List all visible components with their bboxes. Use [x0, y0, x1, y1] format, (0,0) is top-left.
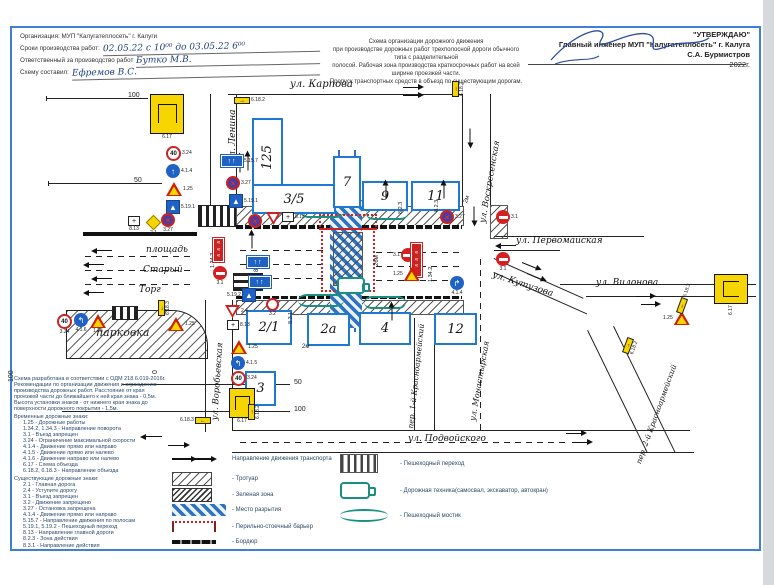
lanes-sign-icon: ↑↑ — [247, 256, 269, 268]
road-sign-1.25: 1.25 — [231, 340, 258, 354]
road-sign-chevv: « « « — [213, 238, 224, 262]
yield-sign-icon — [225, 305, 240, 318]
sidewalk-hatch-icon — [172, 472, 212, 486]
traffic-arrow — [89, 264, 104, 265]
sign-code: 3.1 — [217, 281, 224, 286]
street-label: ул. Кутузова — [491, 270, 555, 299]
legend-item-digsite: - Место разрытия — [172, 504, 281, 516]
sign-code: 8.13 — [295, 215, 305, 220]
building: 4 — [359, 312, 411, 345]
map-text: 100 — [294, 406, 306, 413]
green-zone-icon — [172, 488, 212, 502]
sign-code: 5.19.2 — [227, 293, 241, 298]
noentry-sign-icon — [496, 210, 510, 224]
sign-code: 3.27 — [455, 215, 465, 220]
map-text: 50 — [134, 177, 142, 184]
road-sign-6.17: 6.17 — [150, 94, 184, 140]
road-sign-3.2: 3.2 — [266, 298, 279, 317]
road-line — [232, 452, 694, 453]
road-sign-3.24: 403.24 — [231, 371, 257, 386]
bridge-zone — [298, 294, 344, 307]
traffic-arrow — [392, 308, 393, 321]
traffic-arrow — [444, 186, 445, 199]
legend-item-sidewalk: - Тротуар — [172, 472, 258, 486]
traffic-arrow — [501, 245, 516, 246]
sign-code: 4.1.4 — [451, 291, 462, 296]
temp-signs-list: 1.25 - Дорожные работы1.34.2, 1.34.3 - Н… — [14, 420, 238, 475]
sign-code: 4.1.4 — [181, 169, 192, 174]
building: 3/5 — [252, 184, 336, 214]
legend-label: - Дорожная техника(самосвал, экскаватор,… — [400, 488, 548, 494]
road-sign-6.17: 6.17 — [714, 274, 748, 315]
sign-code: 6.18.2 — [256, 405, 261, 419]
road-sign-3.24: 403.24 — [166, 146, 192, 161]
legend-item-machinery: - Дорожная техника(самосвал, экскаватор,… — [340, 482, 548, 499]
sign-code: 1.25 — [185, 322, 195, 327]
legend-label: - Перильно-стоечный барьер — [232, 524, 313, 530]
street-label: Старый — [143, 265, 183, 275]
traffic-arrow — [522, 262, 536, 269]
yplate-sign-icon: ← — [158, 300, 165, 316]
traffic-arrow — [386, 186, 387, 199]
yplate-sign-icon: → — [234, 97, 250, 104]
road-line — [462, 94, 463, 206]
plate-sign-icon: + — [128, 216, 140, 226]
road-sign-4.1.4: ↱4.1.4 — [450, 276, 464, 296]
road-sign-2.1: 2.1 — [146, 215, 161, 236]
traffic-arrow — [470, 129, 471, 143]
sign-code: 3.27 — [241, 181, 251, 186]
legend-label: - Пешеходный мостик — [400, 513, 461, 519]
speed-sign-icon: 40 — [166, 146, 181, 161]
work-sign-icon — [168, 317, 184, 331]
detour-sign-icon — [150, 94, 184, 134]
chevv-sign-icon: « « « — [213, 238, 224, 262]
ped-sign-icon: ▲ — [229, 194, 243, 208]
sign-code: 4.1.5 — [246, 361, 257, 366]
sign-code: 6.17 — [162, 135, 172, 140]
sign-code: 3.1 — [393, 253, 400, 258]
road-sign-4.1.5: ↰4.1.5 — [231, 356, 257, 370]
road-line — [240, 442, 570, 443]
road-sign-lanes: ↑↑ — [249, 276, 271, 288]
legend-label: - Пешеходный переход — [400, 461, 464, 467]
blue-sign-icon: ↰ — [74, 313, 88, 327]
sign-code: 3.1 — [500, 267, 507, 272]
sign-code: 1.25 — [93, 329, 103, 334]
sign-code: 3.24 — [247, 376, 257, 381]
sign-code: 6.18.2 — [251, 98, 265, 103]
sign-code: 3.1 — [511, 215, 518, 220]
yplate-sign-icon: → — [452, 81, 459, 97]
road-line — [46, 96, 47, 101]
road-line — [494, 250, 560, 251]
yplate-sign-icon: → — [248, 404, 255, 420]
street-label: ул. Первомайская — [516, 236, 603, 246]
road-sign-6.18.3: ←6.18.3 — [676, 283, 693, 314]
traffic-arrow — [572, 442, 587, 443]
sign-code: 5.19.1 — [181, 205, 195, 210]
crosswalk-icon — [340, 454, 378, 473]
yield-sign-icon — [266, 212, 281, 225]
legend-label: Направление движения транспорта — [232, 456, 332, 462]
map-text: 50 — [294, 379, 302, 386]
building-number: 2/1 — [259, 320, 280, 335]
work-sign-icon — [90, 314, 106, 328]
legend-item-footbridge: - Пешеходный мостик — [340, 509, 461, 522]
traffic-arrow — [89, 292, 104, 293]
building-number: 2а — [320, 322, 336, 337]
road-sign-3.1: 3.1 — [496, 210, 518, 224]
building-number: 125 — [260, 145, 275, 170]
sign-code: 1.25 — [663, 316, 673, 321]
road-sign-5.19.1: ▲5.19.1 — [229, 194, 258, 208]
nostop-sign-icon: × — [226, 176, 240, 190]
road-line — [587, 330, 648, 453]
road-sign-3.27: ×3.27 — [440, 210, 465, 224]
building: 2а — [307, 313, 350, 346]
road-sign-5.19.2: ▲5.19.2 — [227, 288, 256, 302]
sign-code: 6.18.3 — [180, 418, 194, 423]
yplate-sign-icon: ← — [195, 417, 211, 424]
legend-label: - Бордюр — [232, 539, 257, 545]
road-sign-lanes: ↑↑ — [247, 256, 269, 268]
bridge-zone — [364, 296, 406, 309]
sign-code: 3.27 — [163, 228, 173, 233]
traffic-arrow — [97, 278, 112, 279]
map-text: 26м — [374, 255, 380, 266]
noentry-sign-icon — [496, 252, 510, 266]
traffic-arrow — [252, 236, 253, 249]
legend-item-direction: Направление движения транспорта — [172, 455, 332, 462]
road-line — [48, 183, 162, 184]
lanes-sign-icon: ↑↑ — [249, 276, 271, 288]
scheme-sheet: Организация: МУП "Калугатеплосеть" г. Ка… — [0, 0, 774, 585]
road-sign-5.15.7: ↑↑5.15.7 — [221, 155, 258, 167]
sign-code: 3.24 — [60, 330, 70, 335]
street-label: площадь — [146, 245, 188, 255]
speed-sign-icon: 40 — [57, 314, 72, 329]
legend-label: - Тротуар — [232, 476, 258, 482]
legend-label: - Зеленая зона — [232, 492, 274, 498]
map-text: 2м — [302, 344, 309, 350]
road-sign-8.13: +8.13 — [227, 320, 250, 330]
ring-sign-icon — [266, 298, 279, 311]
sign-code: 2.1 — [150, 231, 157, 236]
zebra-v-zone — [112, 306, 138, 320]
sign-code: 5.19.1 — [244, 199, 258, 204]
work-sign-icon — [166, 182, 182, 196]
road-sign-1.25: 1.25 — [166, 182, 193, 196]
traffic-arrow — [566, 433, 581, 434]
plate-sign-icon: + — [282, 212, 294, 222]
road-sign-1.25: 1.25 — [168, 317, 195, 331]
sign-code: 3.24 — [182, 151, 192, 156]
legend-item-crosswalk: - Пешеходный переход — [340, 454, 464, 473]
sign-code: 2.4 — [241, 309, 248, 314]
lanes-sign-icon: ↑↑ — [221, 155, 243, 167]
road-line — [210, 94, 211, 214]
legend-item-greenzone: - Зеленая зона — [172, 488, 274, 502]
legend-item-barrier: - Перильно-стоечный барьер — [172, 521, 313, 532]
map-text: 1.34.2 — [428, 267, 434, 282]
map-text: 8.2.3 — [398, 202, 404, 214]
road-sign-1.25: 1.25 — [663, 311, 690, 325]
footbridge-icon — [340, 509, 388, 522]
sign-code: 6.18.2 — [460, 82, 465, 96]
legend-item-kerb: - Бордюр — [172, 539, 257, 545]
sign-code: 6.18.3 — [166, 301, 171, 315]
road-sign-3.1: 3.1 — [496, 252, 510, 272]
road-sign-8.13: +8.13 — [128, 216, 140, 232]
sign-code: 3.2 — [269, 312, 276, 317]
sign-code: 6.17 — [729, 305, 734, 315]
road-sign-yield — [266, 212, 281, 225]
sign-code: 5.15.7 — [244, 159, 258, 164]
blue-sign-icon: ↰ — [231, 356, 245, 370]
road-line — [48, 181, 49, 186]
building: 12 — [434, 313, 477, 345]
road-sign-3.1: 3.1 — [213, 266, 227, 286]
road-sign-3.27: ×3.27 — [226, 176, 251, 190]
traffic-arrow — [403, 95, 418, 96]
road-sign-5.19.1: ▲5.19.1 — [166, 200, 195, 214]
traffic-arrow — [527, 273, 541, 280]
map-text: 100 — [128, 92, 140, 99]
map-text: 2м — [463, 195, 471, 204]
road-sign-1.25: 1.25 — [393, 267, 420, 281]
building-number: 4 — [381, 321, 389, 336]
building-number: 7 — [343, 175, 351, 190]
road-line — [83, 232, 197, 236]
detour-sign-icon — [714, 274, 748, 304]
building: 7 — [333, 156, 361, 208]
work-sign-icon — [231, 340, 247, 354]
map-text: 0 — [152, 370, 159, 374]
blue-sign-icon: ↑ — [166, 164, 180, 178]
road-sign-6.18.3: ←6.18.3 — [180, 417, 211, 424]
road-sign-3.27: ×3.27 — [161, 213, 175, 233]
map-text: 8.3.1 — [288, 312, 294, 324]
nostop-sign-icon: × — [248, 214, 262, 228]
zebra-v-zone — [198, 205, 236, 227]
traffic-arrow — [636, 296, 650, 297]
blue-sign-icon: ↱ — [450, 276, 464, 290]
speed-sign-icon: 40 — [231, 371, 246, 386]
road-line — [434, 342, 435, 430]
ped-sign-icon: ▲ — [166, 200, 180, 214]
work-sign-icon — [404, 267, 420, 281]
legend-label: - Место разрытия — [232, 507, 281, 513]
road-line — [228, 94, 462, 95]
road-sign-6.18.2: →6.18.2 — [452, 81, 465, 97]
street-label: ул. Вилонова — [596, 278, 658, 288]
road-sign-3.24: 403.24 — [57, 314, 72, 335]
street-label: ул. Карпова — [290, 79, 353, 90]
nostop-sign-icon: × — [161, 213, 175, 227]
road-line — [232, 430, 690, 431]
dig-site-icon — [172, 504, 226, 516]
road-sign-2.4: 2.4 — [225, 305, 248, 318]
direction-arrows-icon — [172, 455, 226, 462]
road-line — [240, 250, 328, 251]
sign-code: 1.25 — [248, 345, 258, 350]
sign-code: 8.13 — [129, 227, 139, 232]
road-sign-6.18.2: →6.18.2 — [622, 337, 640, 356]
noentry-sign-icon — [213, 266, 227, 280]
ped-sign-icon: ▲ — [242, 288, 256, 302]
sign-code: 1.25 — [183, 187, 193, 192]
sign-code: 4.1.6 — [75, 328, 86, 333]
building-number: 3/5 — [284, 192, 305, 207]
street-label: Торг — [139, 285, 161, 295]
street-label: ул. Подвойского — [408, 434, 486, 444]
barrier-icon — [172, 521, 216, 532]
sign-code: 6.17 — [237, 419, 247, 424]
road-sign-6.18.3: ←6.18.3 — [158, 300, 171, 316]
machine-zone — [337, 277, 365, 294]
road-line — [85, 256, 195, 257]
traffic-arrow — [474, 207, 475, 221]
road-sign-4.1.4: ↑4.1.4 — [166, 164, 192, 178]
road-sign-1.25: 1.25 — [90, 314, 106, 334]
building-number: 3 — [256, 381, 264, 396]
traffic-arrow — [641, 304, 655, 305]
road-sign-4.1.6: ↰4.1.6 — [74, 313, 88, 333]
street-label: пер. 2-й Красноармейский — [634, 363, 678, 465]
road-sign-nostop: × — [248, 214, 262, 228]
traffic-arrow — [403, 87, 418, 88]
diamond-sign-icon — [146, 215, 162, 231]
nostop-sign-icon: × — [440, 210, 454, 224]
road-sign-6.18.2: →6.18.2 — [234, 97, 265, 104]
building-number: 12 — [447, 322, 464, 337]
notes-intro: Схема разработана в соответствии с ОДМ 2… — [14, 376, 238, 413]
plate-sign-icon: + — [227, 320, 239, 330]
traffic-arrow — [97, 250, 112, 251]
sign-code: 1.25 — [393, 272, 403, 277]
note-line: поверхности дорожного покрытия - 1,5м. — [14, 406, 238, 412]
road-machinery-icon — [340, 482, 370, 499]
road-sign-8.13: +8.13 — [282, 212, 305, 222]
kerb-icon — [172, 540, 216, 544]
road-sign-6.18.2: →6.18.2 — [248, 404, 261, 420]
sign-code: 8.13 — [240, 323, 250, 328]
